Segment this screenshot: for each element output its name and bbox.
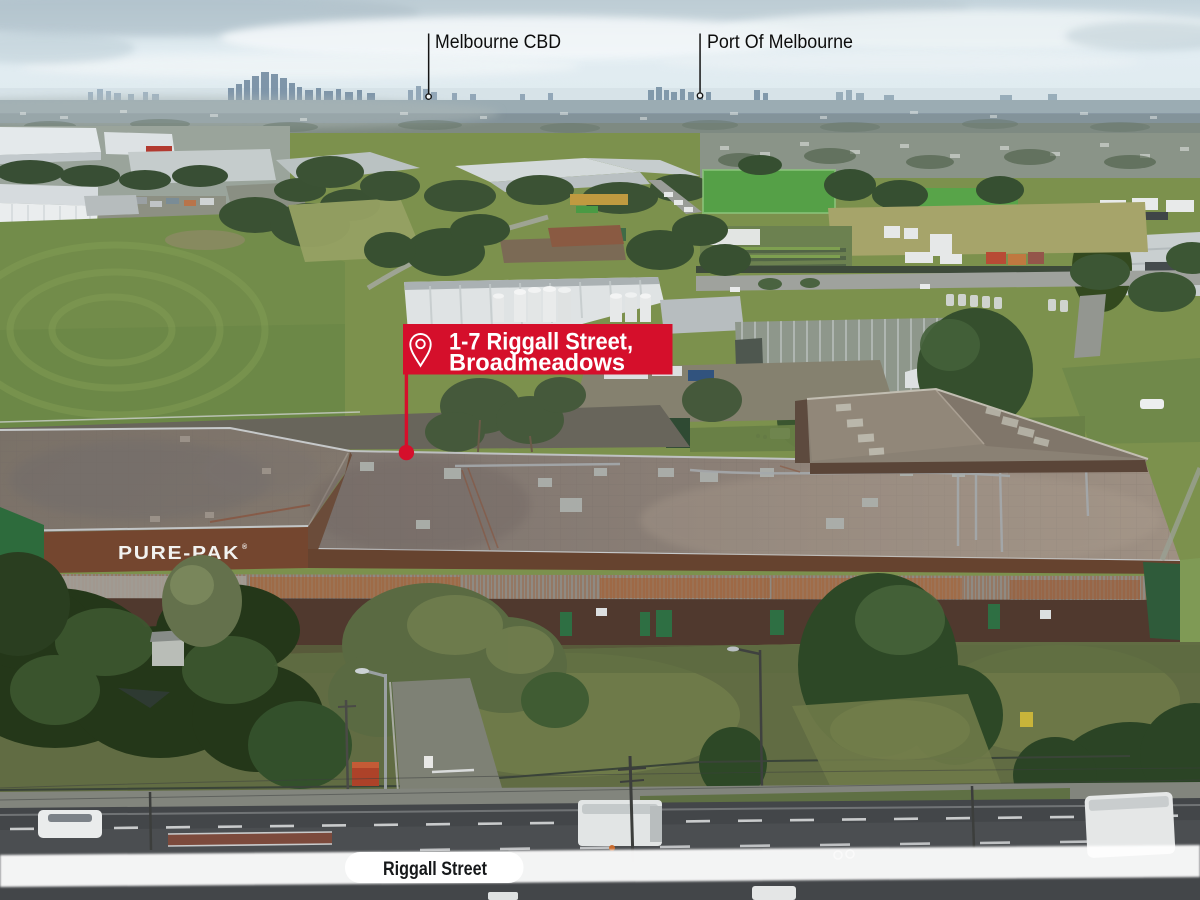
svg-text:Broadmeadows: Broadmeadows (449, 350, 625, 377)
svg-text:Melbourne CBD: Melbourne CBD (435, 31, 561, 53)
svg-text:®: ® (242, 543, 248, 551)
svg-text:Port Of Melbourne: Port Of Melbourne (707, 31, 853, 53)
svg-text:Riggall Street: Riggall Street (383, 858, 487, 880)
svg-text:PURE-PAK: PURE-PAK (118, 542, 240, 563)
